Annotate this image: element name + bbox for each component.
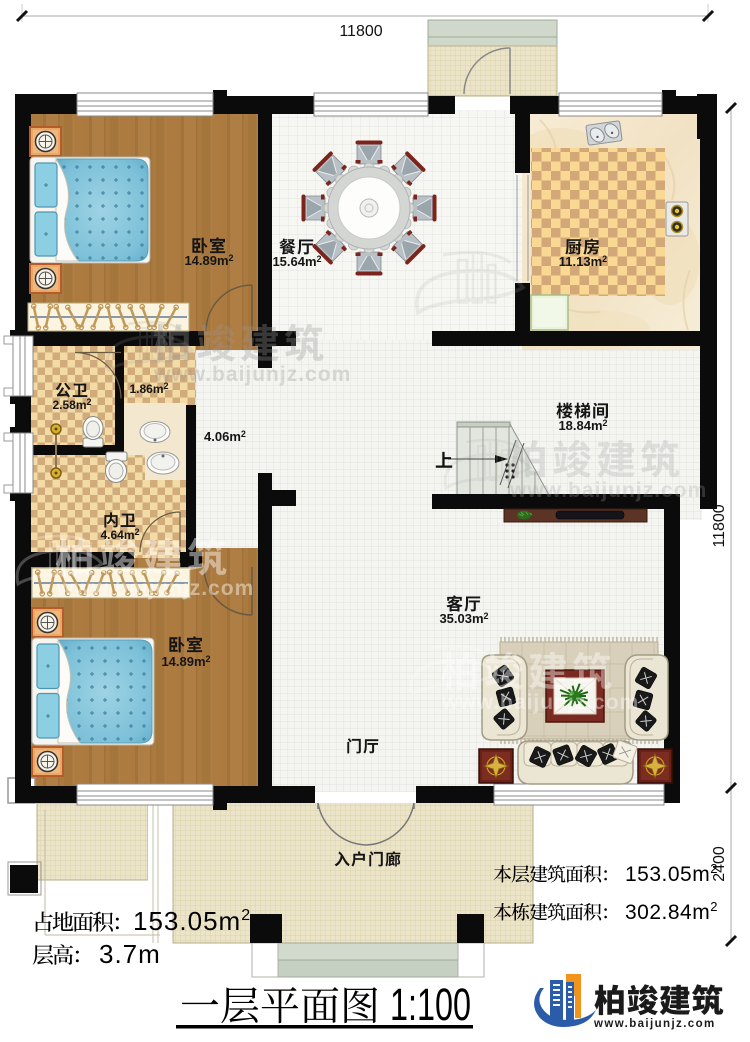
svg-text:14.89m2: 14.89m2 [184,253,233,268]
svg-text:2.58m2: 2.58m2 [52,397,91,412]
svg-text:35.03m2: 35.03m2 [439,611,488,626]
svg-text:14.89m2: 14.89m2 [161,654,210,669]
svg-text:www.baijunjz.com: www.baijunjz.com [441,691,639,714]
svg-text:www.baijunjz.com: www.baijunjz.com [153,363,351,386]
svg-text:www.baijunjz.com: www.baijunjz.com [593,1018,716,1030]
svg-text:11800: 11800 [711,504,728,547]
svg-text:18.84m2: 18.84m2 [558,418,607,433]
svg-text:1.86m2: 1.86m2 [129,381,168,396]
svg-text:153.05m2: 153.05m2 [133,906,251,936]
svg-text:11800: 11800 [339,23,382,40]
svg-text:153.05m2: 153.05m2 [625,861,718,886]
svg-text:302.84m2: 302.84m2 [625,899,718,924]
svg-text:15.64m2: 15.64m2 [272,254,321,269]
svg-text:1:100: 1:100 [390,981,471,1030]
svg-text:3.7m: 3.7m [99,939,161,969]
svg-text:www.baijunjz.com: www.baijunjz.com [509,479,707,502]
svg-text:4.06m2: 4.06m2 [204,429,246,444]
svg-text:4.64m2: 4.64m2 [100,527,139,542]
svg-text:11.13m2: 11.13m2 [559,254,607,269]
svg-text:www.baijunjz.com: www.baijunjz.com [56,577,254,600]
